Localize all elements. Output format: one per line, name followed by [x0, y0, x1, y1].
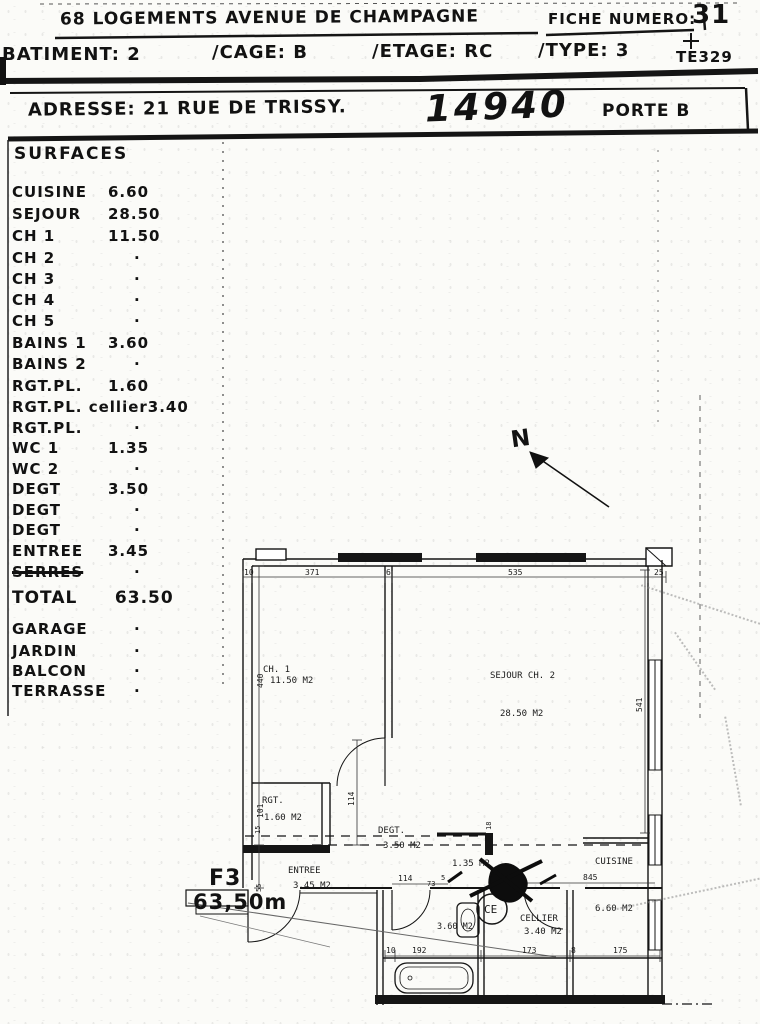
- svg-text:10: 10: [386, 946, 396, 955]
- etage-field: /ETAGE: RC: [372, 43, 493, 61]
- label-cuisine: CUISINE: [595, 857, 633, 867]
- svg-text:114: 114: [347, 791, 356, 806]
- surface-row: SEJOUR28.50: [12, 207, 168, 222]
- surface-row: WC 2·: [12, 462, 194, 477]
- surface-row: CH 3·: [12, 272, 194, 287]
- batiment-field: BATIMENT: 2: [2, 46, 141, 64]
- label-rgt: RGT.: [262, 796, 284, 806]
- surface-row: CH 4·: [12, 293, 194, 308]
- label-ce: CE: [484, 903, 497, 916]
- bathtub: [395, 963, 473, 993]
- apartment-area-label: 63,50m: [193, 892, 287, 913]
- extra-row: BALCON·: [12, 664, 194, 679]
- svg-text:845: 845: [583, 873, 598, 882]
- label-degt-area: 3.50 M2: [383, 841, 421, 851]
- label-ch1: CH. 1: [263, 665, 290, 675]
- cage-field: /CAGE: B: [212, 44, 308, 62]
- fiche-numero-label: FICHE NUMERO:: [548, 12, 696, 27]
- scanned-fiche-page: { "header": { "title": "68 LOGEMENTS AVE…: [0, 0, 760, 1024]
- surface-row: CUISINE6.60: [12, 185, 168, 200]
- floorplan-walls: [186, 548, 712, 1005]
- surface-row: CH 5·: [12, 314, 194, 329]
- svg-text:541: 541: [635, 697, 644, 712]
- svg-text:73: 73: [427, 880, 435, 888]
- svg-text:15: 15: [254, 826, 262, 834]
- label-sejour-area: 28.50 M2: [500, 709, 543, 719]
- surface-row: RGT.PL. cellier3.40: [12, 400, 208, 415]
- room-labels: CH. 1 11.50 M2 SEJOUR CH. 2 28.50 M2 RGT…: [262, 665, 633, 937]
- svg-text:8: 8: [571, 946, 576, 955]
- label-rgt-area: 1.60 M2: [264, 813, 302, 823]
- total-row: TOTAL 63.50: [12, 590, 175, 607]
- svg-text:6: 6: [386, 568, 391, 577]
- surface-row: CH 2·: [12, 251, 194, 266]
- label-cellier: CELLIER: [520, 914, 559, 924]
- svg-text:440: 440: [256, 673, 265, 688]
- svg-text:371: 371: [305, 568, 320, 577]
- surface-row: BAINS 2·: [12, 357, 194, 372]
- label-entree: ENTREE: [288, 866, 321, 876]
- label-bains-area: 3.60 M2: [437, 922, 473, 932]
- ref-code: TE329: [676, 50, 733, 65]
- svg-text:5: 5: [441, 874, 445, 882]
- surface-row: BAINS 13.60: [12, 336, 168, 351]
- label-degt: DEGT.: [378, 826, 405, 836]
- svg-text:192: 192: [412, 946, 427, 955]
- extra-row: GARAGE·: [12, 622, 194, 637]
- surface-row: DEGT·: [12, 523, 194, 538]
- extra-row: JARDIN·: [12, 644, 194, 659]
- label-sejour: SEJOUR CH. 2: [490, 671, 555, 681]
- north-label: N: [509, 427, 532, 453]
- surfaces-title: SURFACES: [14, 146, 128, 163]
- dimension-lines: [243, 566, 666, 962]
- svg-text:101: 101: [256, 803, 265, 818]
- svg-text:114: 114: [398, 874, 413, 883]
- svg-text:10: 10: [244, 568, 254, 577]
- label-ch1-area: 11.50 M2: [270, 676, 313, 686]
- surface-row-serres: SERRES·: [12, 565, 194, 580]
- surface-row: RGT.PL.1.60: [12, 379, 168, 394]
- svg-text:25: 25: [654, 568, 664, 577]
- north-arrow: [530, 452, 609, 507]
- fiche-numero-value: 31: [692, 2, 730, 28]
- surface-row: WC 11.35: [12, 441, 168, 456]
- type-field: /TYPE: 3: [538, 42, 629, 60]
- svg-text:18: 18: [485, 822, 493, 830]
- svg-text:535: 535: [508, 568, 523, 577]
- svg-text:173: 173: [522, 946, 537, 955]
- surface-row: DEGT3.50: [12, 482, 168, 497]
- surface-row: CH 111.50: [12, 229, 168, 244]
- surface-row: ENTREE3.45: [12, 544, 168, 559]
- svg-text:175: 175: [613, 946, 628, 955]
- right-wall-windows: [649, 660, 661, 950]
- surface-row: DEGT·: [12, 503, 194, 518]
- page-title: 68 LOGEMENTS AVENUE DE CHAMPAGNE: [60, 9, 479, 29]
- dimension-labels: 10 371 6 535 25 440 101 15 55 541 114 11…: [244, 568, 664, 955]
- extra-row: TERRASSE·: [12, 684, 194, 699]
- adresse-field: ADRESSE: 21 RUE DE TRISSY.: [28, 98, 347, 119]
- label-cellier-area: 3.40 M2: [524, 927, 562, 937]
- apartment-type-label: F3: [209, 868, 241, 890]
- surface-row: RGT.PL.·: [12, 421, 194, 436]
- postal-code-stamp: 14940: [424, 86, 569, 128]
- porte-field: PORTE B: [602, 103, 690, 120]
- label-entree-area: 3.45 M2: [293, 881, 331, 891]
